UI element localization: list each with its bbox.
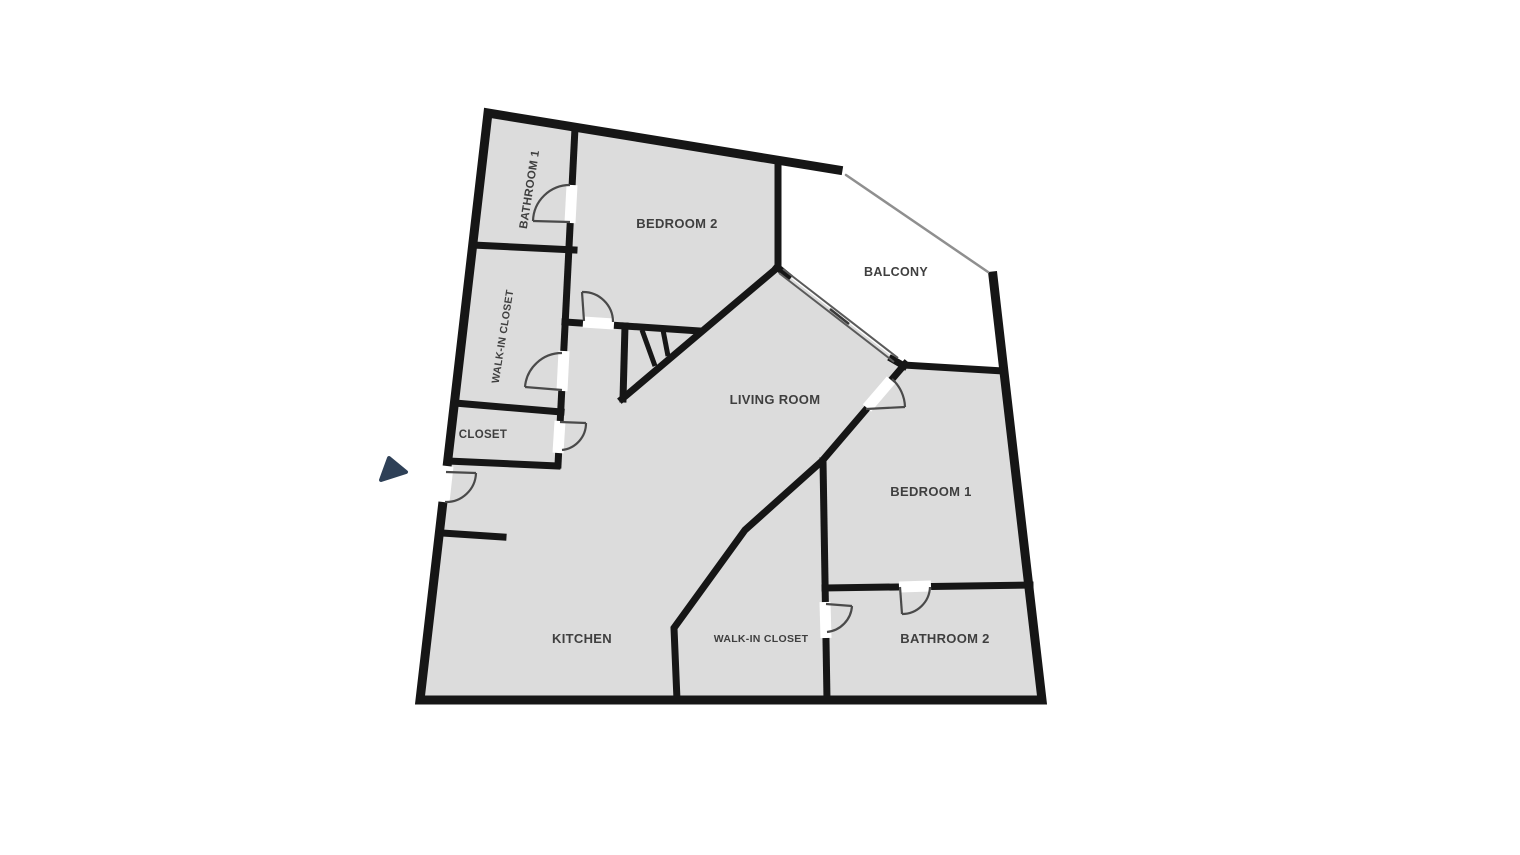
room-label-walk-in-closet-lower: WALK-IN CLOSET: [714, 633, 809, 645]
door-gap-bathroom2-left: [825, 602, 826, 638]
door-gap-walkin-closet: [562, 351, 564, 391]
floor-plan-canvas: BATHROOM 1 WALK-IN CLOSET CLOSET BEDROOM…: [0, 0, 1520, 855]
wall-closet2-bathroom2: [823, 461, 827, 700]
door-gap-bedroom2: [583, 322, 614, 324]
room-label-kitchen: KITCHEN: [552, 631, 612, 646]
room-label-balcony: BALCONY: [864, 265, 928, 279]
room-label-living-room: LIVING ROOM: [730, 392, 821, 407]
room-label-closet: CLOSET: [459, 429, 507, 441]
door-gap-closet: [558, 421, 560, 453]
wall-bathroom1-bottom: [473, 245, 574, 250]
wall-shaft-vertical: [623, 326, 625, 399]
door-gap-bathroom2-top: [899, 586, 931, 587]
floor-plan-page: BATHROOM 1 WALK-IN CLOSET CLOSET BEDROOM…: [0, 0, 1520, 855]
room-label-bedroom-1: BEDROOM 1: [890, 484, 971, 499]
room-label-bedroom-2: BEDROOM 2: [636, 216, 717, 231]
room-label-bathroom-2: BATHROOM 2: [900, 631, 989, 646]
wall-closet-bottom: [448, 461, 557, 466]
door-gap-bathroom1: [570, 185, 572, 223]
wall-entry-stub: [442, 533, 503, 537]
entry-arrow-icon: [381, 458, 406, 480]
balcony-railing: [846, 175, 988, 272]
